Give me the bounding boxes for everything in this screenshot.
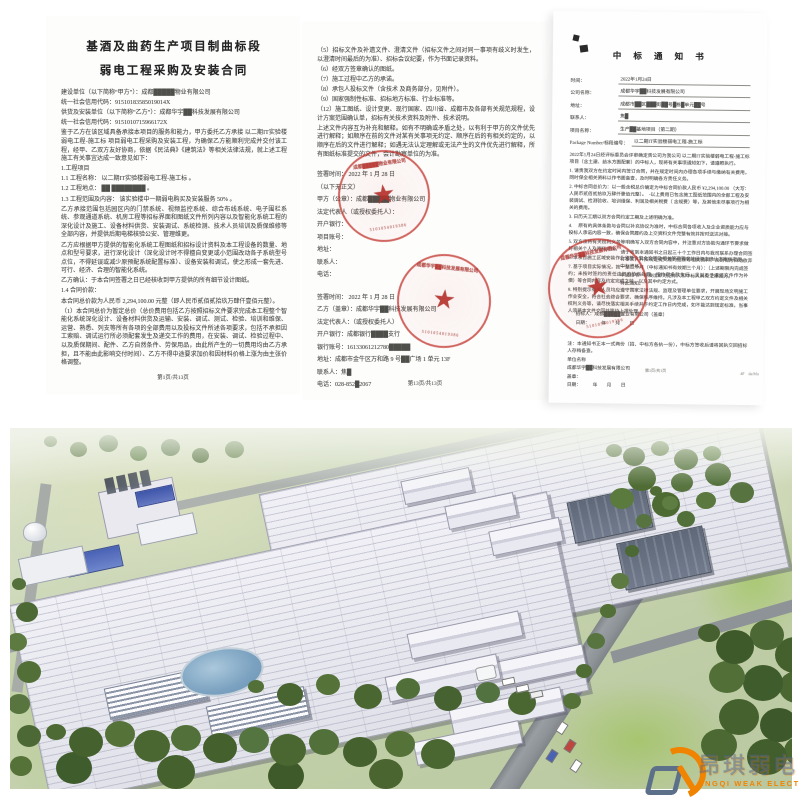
tree-cluster xyxy=(46,724,66,740)
photo-collage: 基酒及曲药生产项目制曲标段 弱电工程采购及安装合同 建设单位（以下简称“甲方”）… xyxy=(0,0,800,800)
seal-company-name: 成都华宇██科技发展有限公司 xyxy=(555,243,628,262)
contract-paragraph: （12）施工图纸、设计变更、现行国家、四川省、成都市及各部有关规范规程，设计方案… xyxy=(317,106,535,123)
contract-paragraph: （8）承包人投标文件（含技术 及商务部分，见附件）。 xyxy=(317,86,535,95)
contract-paragraph: 乙方确认：于本合同签署之日已经核收到甲方提供的所有细节设计图纸。 xyxy=(61,277,287,286)
field-row: Package Number/标段编号：以二期IT实验楼弱电工程-施工标 xyxy=(570,133,750,148)
corner-annotation: 4F da/Mo xyxy=(740,371,759,377)
logo-english-text: ANGQI WEAK ELECTRICITY xyxy=(698,779,800,788)
staple-mark xyxy=(580,45,589,53)
field-row: 地址：成都市██区███街██号█栋█单元██号 xyxy=(570,96,750,111)
contract-paragraph: 统一社会信用代码：9151010715966172X xyxy=(61,119,287,128)
note-line: 盖章： xyxy=(567,373,747,382)
contract-paragraph: （9）国家强制性标准、招标地方标准、行业标准等。 xyxy=(317,96,535,105)
contract-body: （5）招标文件及补遗文件、澄清文件（招标文件之间对同一事项有歧义时发生，以澄清时… xyxy=(317,47,535,159)
tree-cluster xyxy=(650,486,662,496)
contract-paragraph: 1.工程项目 xyxy=(61,165,287,174)
field-value: 成都市██区███街██号█栋█单元██号 xyxy=(618,100,750,111)
contract-paragraph: （1）本合同总价为暂定总价（总价费用包括乙方按照招标文件要求完成本工程整个智能化… xyxy=(61,308,287,368)
page-number: 第13页/共13页 xyxy=(302,379,548,387)
contract-paragraph: 1.3 工程范围及内容： 该实验楼中一期弱电购买及安装服务 50% 。 xyxy=(61,196,287,205)
contract-paragraph: 1.2 工程地点： ██ ████████ 。 xyxy=(61,185,287,194)
horizon-haze xyxy=(10,428,792,486)
storage-tank xyxy=(23,522,47,542)
field-value: 成都华宇██科技发展有限公司 xyxy=(618,88,750,99)
seal-company-name: 成都█████物业有限公司 xyxy=(346,157,413,172)
page-number: 第1页/共13页 xyxy=(46,373,300,381)
contract-paragraph: 乙方应根据甲方提供的智能化系统工程图纸和招标设计资料及本工程设备的数量、地点和型… xyxy=(61,242,287,276)
star-icon: ★ xyxy=(371,181,398,210)
note-line: 注：本通知书正本一式两份（招、中标方各执一份），中标方签收后请将回执交回招标人存… xyxy=(567,341,747,357)
contract-paragraph: 本合同总价款为人民币 2,294,100.00 元整（即人民币贰佰贰拾玖万肆仟壹… xyxy=(61,298,287,307)
field-value: 生产██基地项目（第二期） xyxy=(618,125,750,136)
contract-paragraph: （6）经双方签章确认的图纸。 xyxy=(317,66,535,75)
field-label: 联系人： xyxy=(570,114,614,122)
field-label: 时间： xyxy=(571,76,615,84)
contract-body: 建设单位（以下简称“甲方”）：成都█████物业有限公司统一社会信用代码：915… xyxy=(61,89,287,368)
contract-page-1: 基酒及曲药生产项目制曲标段 弱电工程采购及安装合同 建设单位（以下简称“甲方”）… xyxy=(46,16,300,394)
contract-title-line1: 基酒及曲药生产项目制曲标段 xyxy=(61,38,287,54)
tree-cluster xyxy=(12,578,26,590)
award-item: 1. 请贵我双方在约定时间内签订合同，并在规定时间内办理各项手续与缴纳有关费用，… xyxy=(569,168,749,184)
award-item: 2. 中标合同总价为：以一般含税总价确定为中标合同价款人民币 ¥2,294,10… xyxy=(569,184,749,214)
field-label: Package Number/标段编号： xyxy=(570,139,628,147)
staple-mark xyxy=(572,34,579,41)
award-notice-page: 中 标 通 知 书 时间：2022年1月24日公司名称：成都华宇██科技发展有限… xyxy=(549,11,768,406)
award-intro: 2022年1月24日经评标委员会评审确定贵公司为我公司 以二期IT实验楼弱电工程… xyxy=(570,152,750,168)
award-item: 3. 日历天工期以双方合同约定工期及上述明确为准。 xyxy=(569,214,749,223)
contract-paragraph: 1.4 合同价款： xyxy=(61,287,287,296)
seal-company-name: 成都华宇██科技发展有限公司 xyxy=(413,262,482,274)
field-label: 公司名称： xyxy=(570,89,614,97)
signature-line: 地址：成都市金牛区万和路 9 号██广场 1 单元 13F xyxy=(317,354,535,367)
field-value: 以二期IT实验楼弱电工程-施工标 xyxy=(632,138,750,148)
contract-paragraph: 建设单位（以下简称“甲方”）：成都█████物业有限公司 xyxy=(61,89,287,98)
note-line: 日期： 年 月 日 xyxy=(567,382,747,391)
tree-cluster xyxy=(698,624,720,642)
contract-paragraph: 供货及安装单位（以下简称“乙方”）：成都华宇██科技发展有限公司 xyxy=(61,109,287,118)
tree-cluster xyxy=(248,680,264,693)
aerial-rendering xyxy=(10,428,792,789)
field-value: 2022年1月24日 xyxy=(619,75,751,86)
field-label: 地址： xyxy=(570,101,614,109)
signature-line: 地址： xyxy=(317,244,535,257)
contract-paragraph: 鉴于乙方在该区域具备承接本项目的服务和能力，甲方委托乙方承接 以二期IT实验楼弱… xyxy=(61,129,287,163)
watermark-logo: 昂琪弱电 ANGQI WEAK ELECTRICITY xyxy=(640,746,798,798)
field-row: 公司名称：成都华宇██科技发展有限公司 xyxy=(570,83,750,98)
contract-paragraph: 上述文件内容互为补充和解释。如有不明确或矛盾之处，以有利于甲方的文件优先进行解释… xyxy=(317,125,535,159)
award-notice-fields: 时间：2022年1月24日公司名称：成都华宇██科技发展有限公司地址：成都市██… xyxy=(570,71,751,148)
contract-paragraph: 1.1 工程名称： 以二期IT实验楼弱电工程-施工标 。 xyxy=(61,175,287,184)
award-notice-title: 中 标 通 知 书 xyxy=(571,49,751,63)
note-line: 单位名称 xyxy=(567,356,747,365)
field-row: 联系人：焦█ xyxy=(570,108,750,123)
contract-paragraph: 乙方承接范围包括园区内的门禁系统、视频监控系统、综合布线系统、电子围栏系统、参观… xyxy=(61,206,287,240)
star-icon: ★ xyxy=(584,272,612,302)
contract-paragraph: （5）招标文件及补遗文件、澄清文件（招标文件之间对同一事项有歧义时发生，以澄清时… xyxy=(317,47,535,64)
contract-page-13: （5）招标文件及补遗文件、澄清文件（招标文件之间对同一事项有歧义时发生，以澄清时… xyxy=(302,22,548,400)
field-row: 时间：2022年1月24日 xyxy=(571,71,751,86)
award-item: 4. 原有的具体条款与合同以补充协议为准时，中标合同各项收入及企业资质能力应与投… xyxy=(569,223,749,239)
field-value: 焦█ xyxy=(618,113,750,124)
contract-title-line2: 弱电工程采购及安装合同 xyxy=(61,62,287,78)
field-row: 项目名称：生产██基地项目（第二期） xyxy=(570,121,750,136)
field-label: 项目名称： xyxy=(570,126,614,134)
contract-paragraph: （7）施工过程中乙方的承诺。 xyxy=(317,76,535,85)
footer-notes: 注：本通知书正本一式两份（招、中标方各执一份），中标方签收后请将回执交回招标人存… xyxy=(567,341,748,393)
star-icon: ★ xyxy=(431,286,457,314)
signature-line: 联系人：焦█ xyxy=(317,367,535,380)
contract-paragraph: 统一社会信用代码：91510183585019014X xyxy=(61,99,287,108)
logo-chinese-text: 昂琪弱电 xyxy=(698,748,798,780)
page-number: 第1页/共1页 xyxy=(645,368,666,374)
